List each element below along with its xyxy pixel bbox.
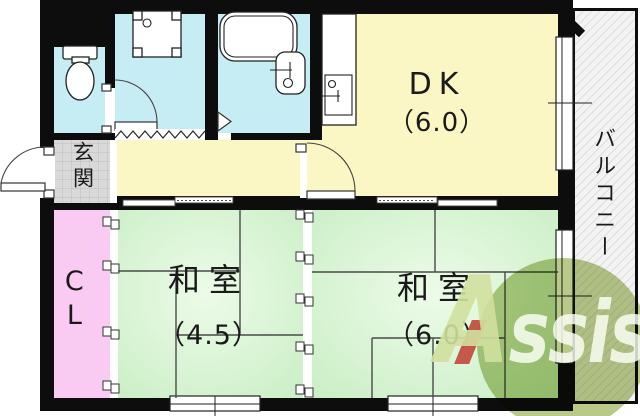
- washitsu-45-label: 和室: [168, 263, 250, 298]
- wall-genkan-bottom: [40, 203, 110, 210]
- closet-sliding-track: [110, 210, 118, 398]
- dk-floor: [322, 14, 558, 196]
- kitchen-sink-icon: [322, 14, 356, 125]
- window-bottom-left: [170, 396, 260, 416]
- wall-toilet-bottom: [40, 133, 115, 140]
- washing-machine-icon: [133, 11, 181, 57]
- dk-room-size: （6.0）: [388, 109, 486, 138]
- watermark-logo-text: Assist: [436, 262, 640, 382]
- genkan-step: [110, 140, 117, 203]
- wall-bath-dk: [310, 0, 322, 140]
- hallway-floor: [110, 139, 322, 196]
- washitsu-45-size: （4.5）: [158, 321, 260, 351]
- toilet-icon: [63, 46, 97, 100]
- floor-plan-image: DK （6.0） 和室 （4.5） 和室 （6.0） 玄関 CL バルコニー A…: [0, 0, 640, 416]
- wall-washroom-bath: [205, 14, 218, 140]
- washroom-accordion-door: [115, 129, 205, 140]
- watermark-letters-rest: ssist: [509, 283, 640, 383]
- wall-bottom: [40, 398, 573, 411]
- balcony-label: バルコニー: [590, 127, 614, 262]
- watermark-letter-a: A: [436, 252, 509, 391]
- genkan-label: 玄関: [70, 141, 93, 193]
- closet-label: CL: [59, 266, 89, 334]
- wall-top: [40, 0, 573, 14]
- dk-room-label: DK: [409, 68, 466, 101]
- wall-toilet-washroom: [105, 47, 115, 88]
- wall-bath-bottom: [231, 133, 310, 140]
- washitsu-45-floor: [110, 210, 303, 398]
- window-bottom-right: [388, 396, 478, 416]
